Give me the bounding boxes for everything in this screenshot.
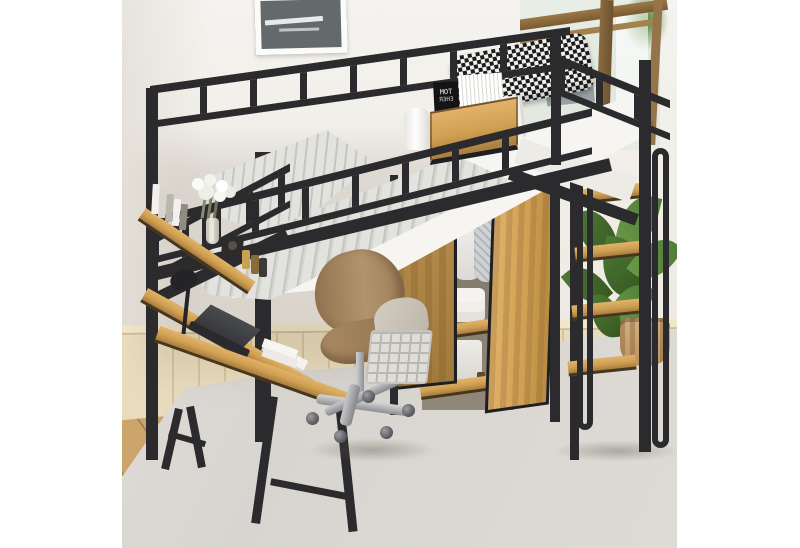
ladder-handrail-right: [652, 148, 669, 448]
product-image-canvas: MOT ЯЗНЗ: [0, 0, 800, 548]
chair-caster: [306, 412, 319, 425]
chair-caster: [380, 426, 393, 439]
paper-roll: [404, 108, 430, 150]
wire-basket: [365, 330, 433, 384]
chair-caster: [402, 404, 415, 417]
bed-post-front-right: [639, 60, 651, 452]
camera-lens: [227, 240, 237, 250]
chair-caster: [334, 430, 347, 443]
bed-post-front-left: [146, 88, 158, 460]
picture-content-streak: [265, 16, 323, 26]
chair-caster: [362, 390, 375, 403]
picture-frame: [254, 0, 348, 55]
camera: [221, 237, 244, 256]
babys-breath-flowers: [192, 178, 204, 190]
picture-content-streak2: [279, 28, 319, 32]
product-photo[interactable]: MOT ЯЗНЗ: [122, 0, 677, 548]
shelf-bottles: [242, 250, 250, 269]
tray-book-text-2: ЯЗНЗ: [434, 95, 459, 104]
glass-vase: [206, 218, 219, 244]
